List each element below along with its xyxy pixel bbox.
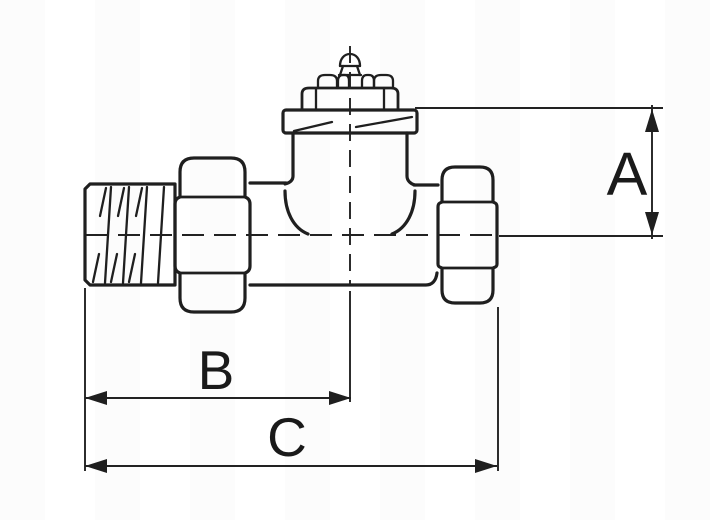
- thread-slash: [100, 188, 106, 216]
- c-arrow-left: [85, 459, 107, 473]
- dimension-label-a: A: [607, 140, 648, 208]
- thread-slash: [93, 254, 99, 282]
- valve-technical-drawing: A B C: [0, 0, 720, 520]
- b-arrow-right: [329, 391, 351, 405]
- dimension-label-b: B: [198, 339, 235, 401]
- flange-sheen-line: [294, 122, 332, 131]
- cap-knurl-lobe: [374, 75, 393, 88]
- bonnet-neck-right: [407, 133, 415, 185]
- drawing-canvas: A B C: [0, 0, 720, 520]
- thread-slash: [129, 254, 135, 282]
- cap-knurl-lobe: [362, 75, 374, 88]
- bonnet-neck-left: [285, 133, 293, 184]
- cap-knurl-lobe: [338, 75, 349, 88]
- spindle-neck-left: [340, 66, 343, 75]
- a-arrow-down: [645, 212, 659, 235]
- c-arrow-right: [475, 459, 497, 473]
- valve-body: [250, 133, 438, 285]
- flange-sheen-line: [356, 117, 412, 127]
- dimension-b: B: [85, 288, 351, 471]
- body-cheek-left: [285, 191, 308, 234]
- dimension-label-c: C: [267, 406, 307, 468]
- dimension-c: C: [85, 307, 498, 473]
- tube-bottom: [250, 273, 437, 285]
- a-arrow-up: [645, 109, 659, 132]
- spindle-neck-right: [357, 66, 360, 75]
- thread-slash: [111, 254, 117, 282]
- thread-line: [141, 187, 147, 283]
- body-cheek-right: [392, 191, 415, 234]
- thread-slash: [118, 188, 124, 216]
- thread-slash: [136, 188, 142, 216]
- b-arrow-left: [85, 391, 107, 405]
- cap-knurl-lobe: [318, 75, 337, 88]
- dimension-a: A: [415, 105, 663, 239]
